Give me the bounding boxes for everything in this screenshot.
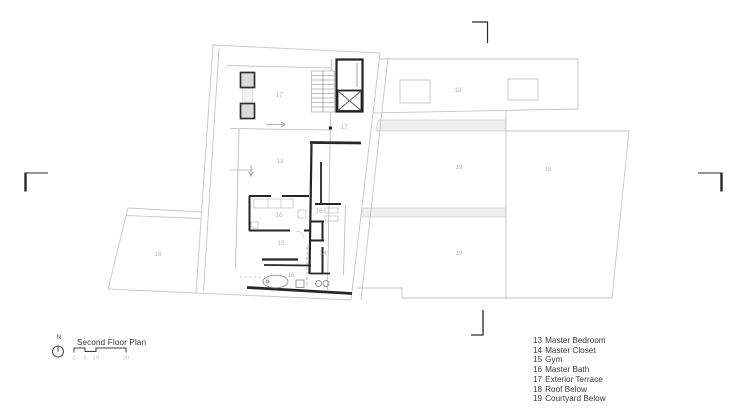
crop-mark-right-bar xyxy=(720,173,722,192)
floor-plan-sheet: 17 17 13 16 16 15 14 16 18 18 19 18 19 0… xyxy=(0,0,750,417)
legend-item-name: Gym xyxy=(545,355,562,364)
room-label-gym: 15 xyxy=(277,240,285,247)
room-label-master-bedroom: 13 xyxy=(276,158,284,165)
scale-bar: 0 5 10 20 xyxy=(72,348,129,362)
room-label-terrace-east: 17 xyxy=(340,124,348,131)
scale-tick-20: 20 xyxy=(123,356,129,362)
room-label-courtyard-upper: 19 xyxy=(455,164,463,171)
north-arrow xyxy=(53,346,64,358)
scale-tick-10: 10 xyxy=(93,356,99,362)
legend-item-name: Master Bedroom xyxy=(545,336,606,345)
legend-item: 17Exterior Terrace xyxy=(533,375,606,385)
legend-item-name: Exterior Terrace xyxy=(545,375,603,384)
room-label-master-closet: 14 xyxy=(319,250,327,257)
roof-east-wing xyxy=(357,59,629,298)
room-label-bath-east: 16 xyxy=(315,208,323,215)
room-label-bath-west: 16 xyxy=(275,212,283,219)
roof-east-block xyxy=(506,131,629,298)
roof-edge-band-1 xyxy=(376,120,506,131)
room-label-terrace-west: 17 xyxy=(275,92,283,99)
legend-item-number: 19 xyxy=(533,394,542,404)
elevator-shaft xyxy=(337,60,363,112)
legend-item-number: 16 xyxy=(533,365,542,375)
north-label: N xyxy=(52,334,66,341)
skylight-box-2 xyxy=(241,104,255,119)
scale-tick-0: 0 xyxy=(72,356,75,362)
legend-item-name: Master Bath xyxy=(545,365,589,374)
legend-item-number: 13 xyxy=(533,336,542,346)
room-label-roof-north: 18 xyxy=(454,87,462,94)
crop-mark-bottom-right xyxy=(471,310,483,335)
skylight-box-1 xyxy=(241,73,255,88)
legend-item-number: 17 xyxy=(533,375,542,385)
legend-item-number: 14 xyxy=(533,346,542,356)
room-label-bath-south: 16 xyxy=(287,272,295,279)
legend-item: 14Master Closet xyxy=(533,346,606,356)
bathtub xyxy=(263,275,288,288)
plan-title: Second Floor Plan xyxy=(77,338,146,347)
legend-item: 16Master Bath xyxy=(533,365,606,375)
room-label-roof-west: 18 xyxy=(154,251,162,258)
legend-item: 15Gym xyxy=(533,355,606,365)
scale-tick-5: 5 xyxy=(83,356,86,362)
floor-plan-drawing: 17 17 13 16 16 15 14 16 18 18 19 18 19 0… xyxy=(0,0,750,417)
legend-item-name: Courtyard Below xyxy=(545,394,606,403)
crop-mark-left-bar xyxy=(24,173,26,192)
roof-edge-band-2 xyxy=(361,208,506,217)
stair xyxy=(312,71,335,112)
room-legend: 13Master Bedroom 14Master Closet 15Gym 1… xyxy=(533,336,606,404)
legend-item-number: 18 xyxy=(533,385,542,395)
courtyard-south-edge xyxy=(357,288,506,298)
legend-item: 18Roof Below xyxy=(533,385,606,395)
legend-item: 19Courtyard Below xyxy=(533,394,606,404)
terrace-skylights xyxy=(241,73,255,119)
roof-north-band xyxy=(373,59,578,113)
legend-item-name: Roof Below xyxy=(545,385,587,394)
legend-item-name: Master Closet xyxy=(545,346,596,355)
crop-mark-top-right xyxy=(472,22,488,43)
legend-item-number: 15 xyxy=(533,355,542,365)
legend-item: 13Master Bedroom xyxy=(533,336,606,346)
room-label-courtyard-lower: 19 xyxy=(455,250,463,257)
room-label-roof-east: 18 xyxy=(544,166,552,173)
